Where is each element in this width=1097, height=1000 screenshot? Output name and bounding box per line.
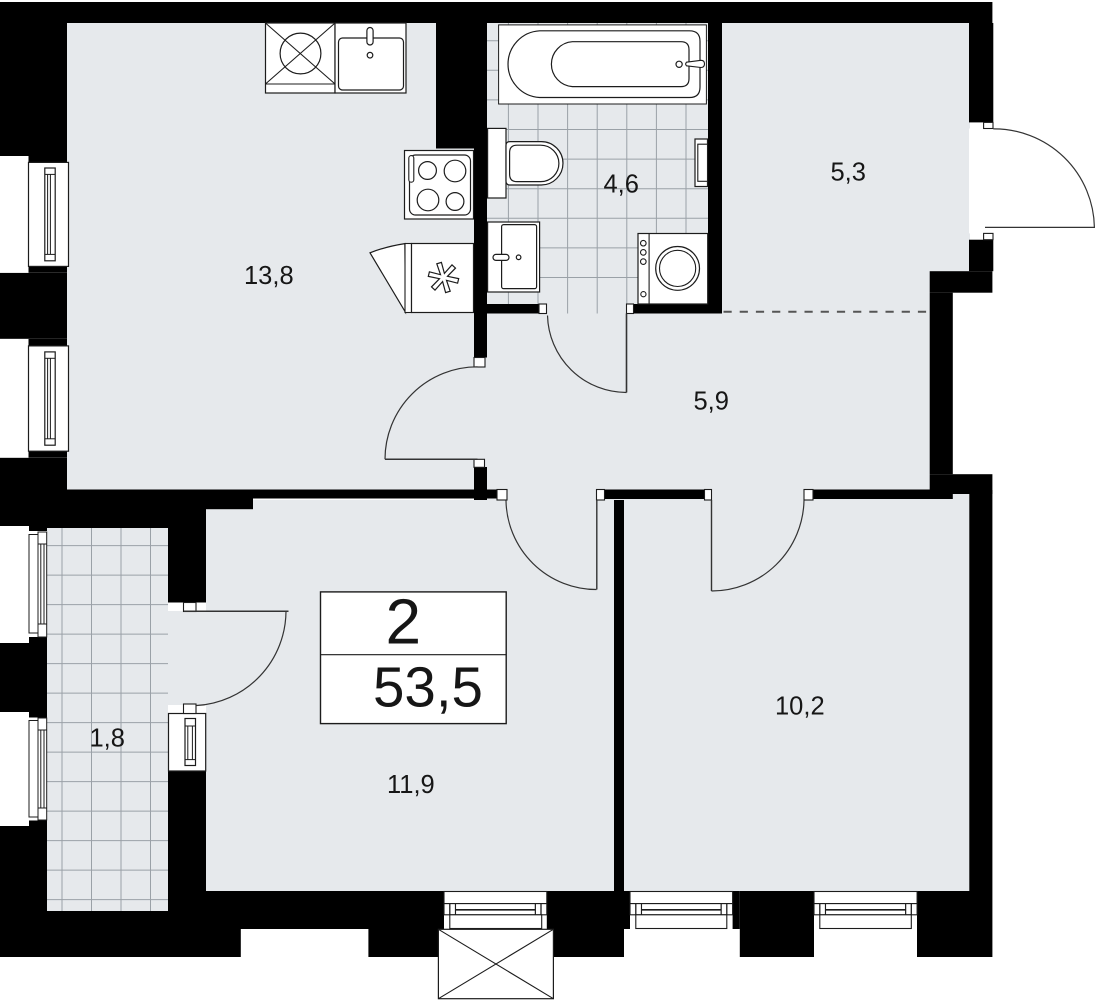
svg-text:2: 2 (386, 586, 422, 658)
svg-text:13,8: 13,8 (244, 262, 294, 290)
svg-text:4,6: 4,6 (604, 171, 639, 199)
svg-text:11,9: 11,9 (387, 771, 435, 799)
svg-text:10,2: 10,2 (775, 693, 825, 721)
svg-text:5,3: 5,3 (831, 159, 866, 187)
svg-text:5,9: 5,9 (694, 388, 729, 416)
svg-text:53,5: 53,5 (373, 656, 483, 719)
svg-text:1,8: 1,8 (90, 725, 125, 753)
